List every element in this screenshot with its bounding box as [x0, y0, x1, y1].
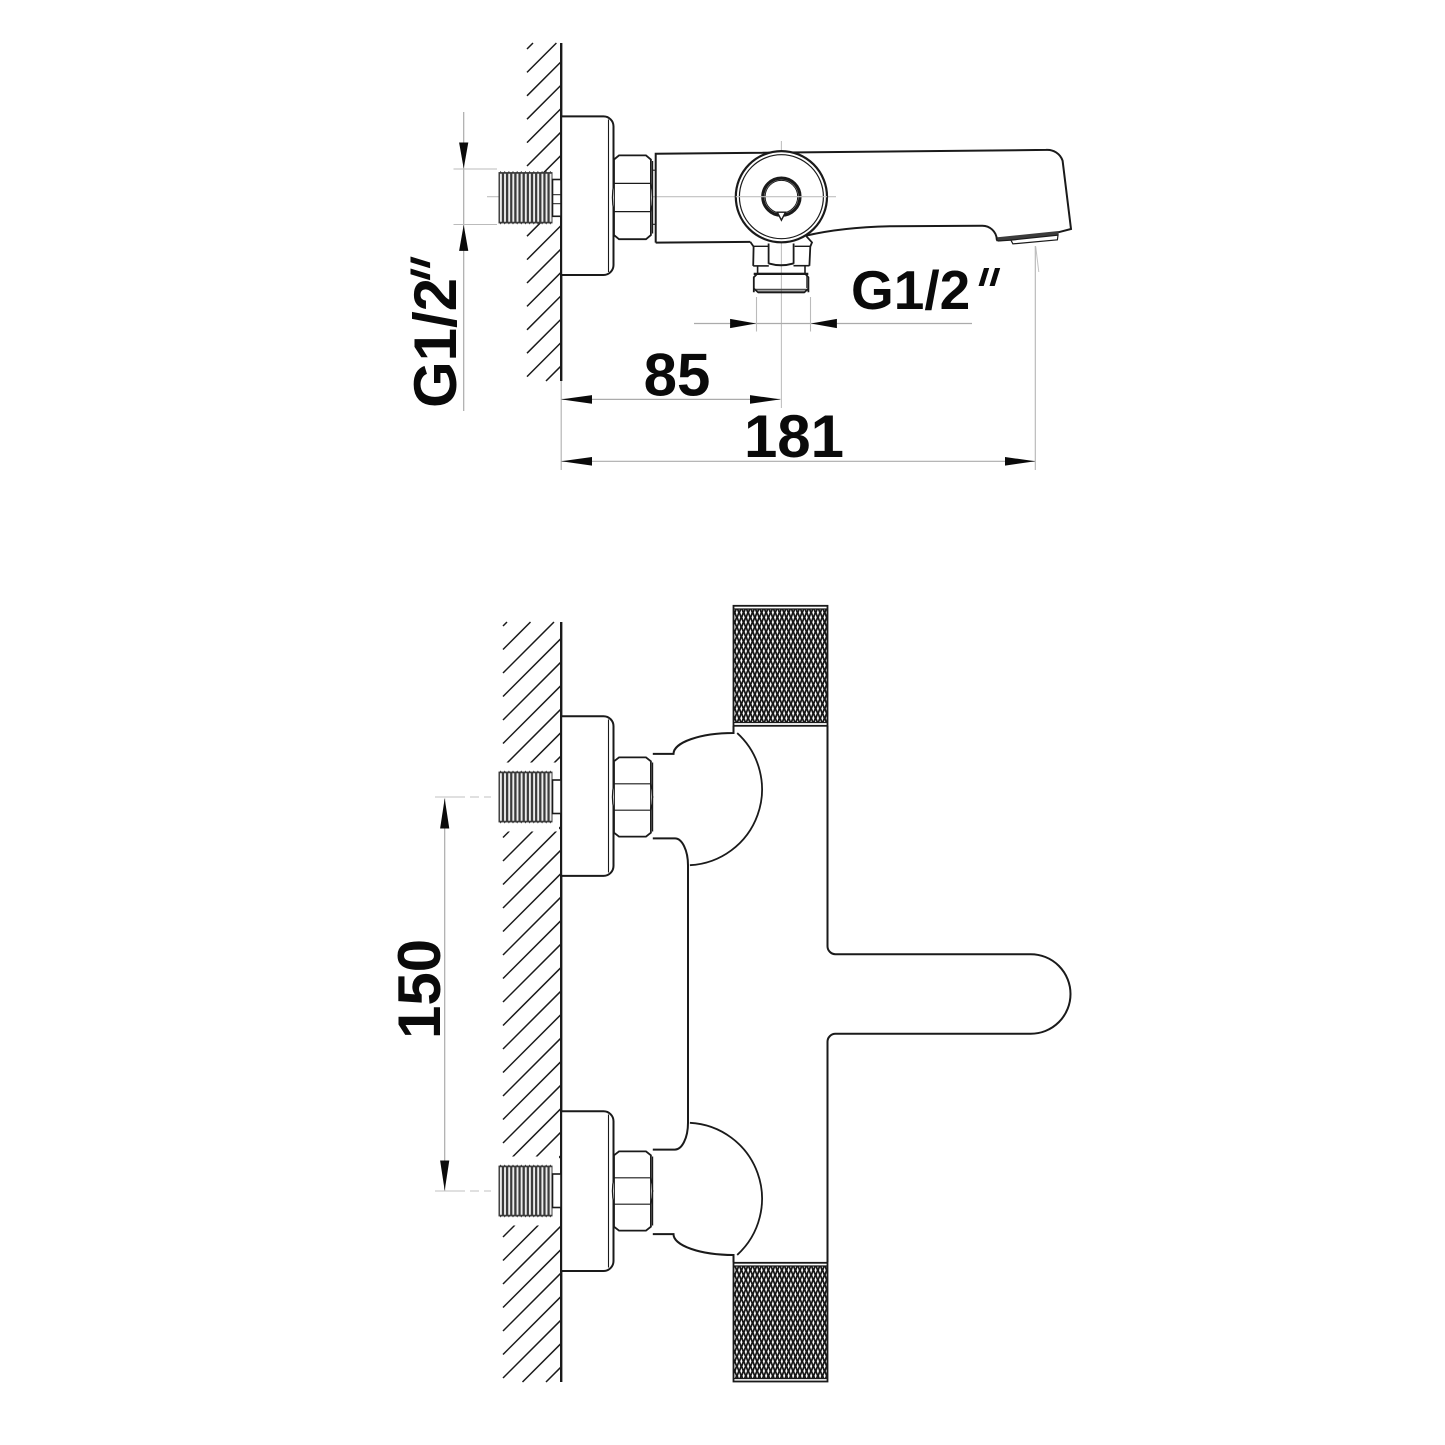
- svg-text:181: 181: [744, 403, 844, 470]
- svg-text:G1/2: G1/2: [851, 259, 970, 321]
- svg-text:G1/2: G1/2: [402, 278, 469, 408]
- svg-text:85: 85: [644, 342, 711, 409]
- svg-text:150: 150: [386, 939, 453, 1039]
